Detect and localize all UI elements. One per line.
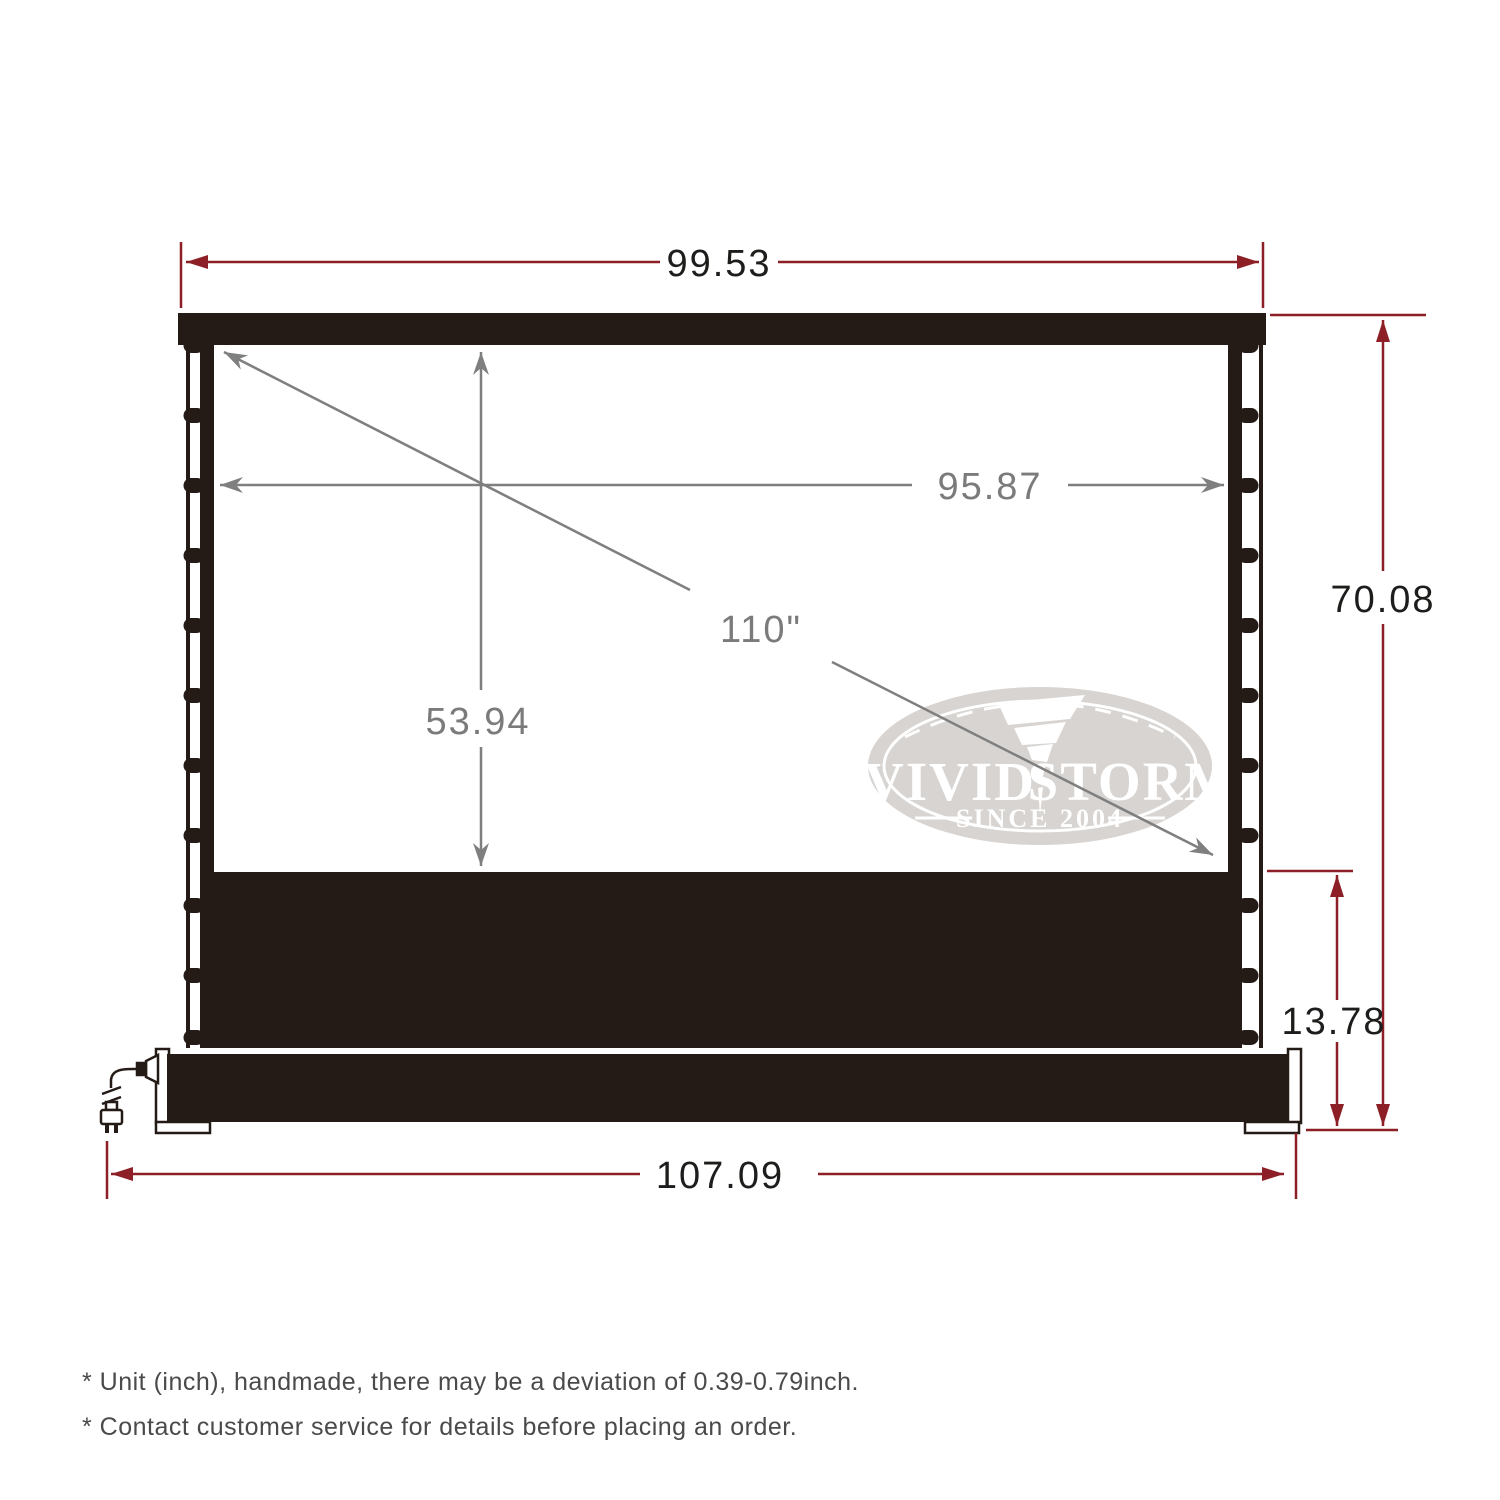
cord-upper (111, 1069, 138, 1088)
logo-word-left: VIVID (864, 751, 1036, 812)
logo-word-right: STORM (1028, 751, 1239, 812)
rail-knob (1238, 618, 1259, 633)
rail-knob (184, 898, 205, 913)
rail-knob (184, 548, 205, 563)
plug-body (101, 1110, 122, 1124)
footnote-contact: * Contact customer service for details b… (82, 1413, 797, 1441)
base-right-foot (1245, 1122, 1299, 1133)
screen-assembly: VIVID STORM SINCE 2004 (178, 313, 1266, 1048)
rail-knob (1238, 1030, 1259, 1045)
screen-top-bar (178, 313, 1266, 345)
base-right-end-cap (1288, 1049, 1301, 1123)
label-top-width: 99.53 (666, 243, 771, 285)
footnote-unit: * Unit (inch), handmade, there may be a … (82, 1368, 859, 1396)
rail-knob (184, 478, 205, 493)
rail-knob (1238, 828, 1259, 843)
cord-bushing (137, 1063, 146, 1075)
label-viewing-height: 53.94 (425, 701, 530, 743)
rail-knob (1238, 688, 1259, 703)
label-base-height: 13.78 (1281, 1001, 1386, 1043)
label-base-width: 107.09 (656, 1155, 784, 1197)
cord-strain-relief (146, 1055, 158, 1083)
base-left-foot (156, 1122, 210, 1133)
label-viewing-width: 95.87 (937, 466, 1042, 508)
rail-knob (184, 338, 205, 353)
label-diagonal: 110" (720, 609, 802, 651)
rail-knob (1238, 968, 1259, 983)
rail-knob (184, 828, 205, 843)
power-cord (101, 1055, 158, 1133)
rail-knob (184, 688, 205, 703)
rail-knob (184, 758, 205, 773)
rail-knob (1238, 478, 1259, 493)
plug-prong-right (114, 1124, 118, 1133)
footnotes: * Unit (inch), handmade, there may be a … (82, 1368, 859, 1441)
label-overall-height: 70.08 (1330, 579, 1435, 621)
dimension-drawing: VIVID STORM SINCE 2004 (0, 0, 1500, 1500)
logo-since-text: SINCE 2004 (956, 804, 1124, 833)
rail-knob (1238, 548, 1259, 563)
rail-knob (184, 1030, 205, 1045)
rail-knob (1238, 758, 1259, 773)
rail-knob (184, 618, 205, 633)
base-cabinet (156, 1049, 1301, 1133)
base-body (167, 1054, 1289, 1122)
right-rail-outer-line (1259, 345, 1263, 1048)
diagram-svg: VIVID STORM SINCE 2004 (0, 0, 1500, 1500)
rail-knob (1238, 338, 1259, 353)
rail-knob (184, 408, 205, 423)
plug-prong-left (105, 1124, 109, 1133)
screen-drop-section (200, 872, 1242, 1048)
rail-knob (184, 968, 205, 983)
rail-knob (1238, 408, 1259, 423)
rail-knob (1238, 898, 1259, 913)
